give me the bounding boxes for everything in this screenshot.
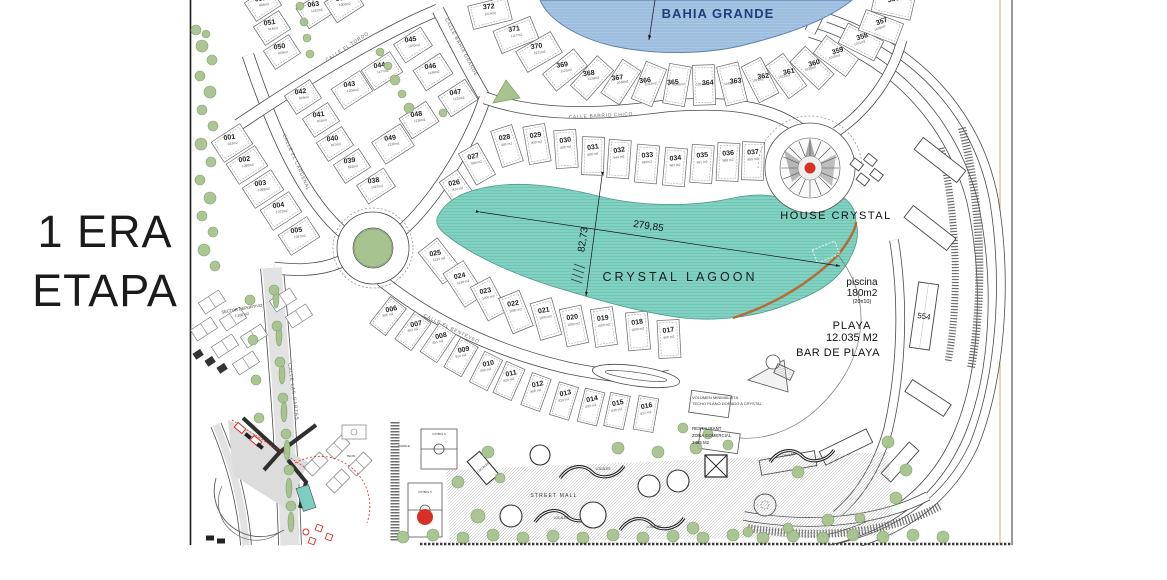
street-mall-label: STREET MALL xyxy=(530,493,577,499)
lot-015: 015830 m2 xyxy=(604,392,631,429)
lot-062: 0621000m2 xyxy=(324,0,364,23)
house-crystal-center xyxy=(805,163,816,174)
locales-label-3: LOCALES xyxy=(647,525,662,529)
roundabout xyxy=(333,208,413,288)
restaurant-label-1: RESTAURANT xyxy=(692,426,722,431)
futbol-label-1: FUTBOL 5 xyxy=(432,432,446,436)
restaurant-label-3: 1485 M2 xyxy=(692,440,710,445)
lot-364: 3641021m2 xyxy=(692,65,715,106)
svg-text:034: 034 xyxy=(669,155,681,163)
lot-016: 016837 m2 xyxy=(633,396,659,433)
svg-text:035: 035 xyxy=(696,152,708,160)
svg-text:033: 033 xyxy=(641,152,653,160)
lot-033: 033987m2 xyxy=(634,144,659,184)
red-marker xyxy=(417,509,433,525)
playa-label-1: PLAYA xyxy=(833,320,872,332)
stage-line1: 1 ERA xyxy=(30,202,180,261)
bahia-grande-label: BAHIA GRANDE xyxy=(662,6,775,21)
volumen-label-1: VOLUMEN MINIMALISTA xyxy=(692,395,738,400)
green-triangle xyxy=(493,80,520,103)
lot-030: 030800 m2 xyxy=(554,129,579,168)
playa-label-2: 12.035 M2 xyxy=(826,332,878,344)
paddle-label: PADDLE xyxy=(398,444,410,448)
stage-label: 1 ERA ETAPA xyxy=(30,202,180,321)
lot-031: 031800 m2 xyxy=(581,137,604,176)
lot-017: 017900 m2 xyxy=(657,319,681,358)
lot-029: 029800 m2 xyxy=(523,123,551,164)
lot-372: 3721214m2 xyxy=(468,0,513,29)
tenis-label: TENIS xyxy=(347,454,356,458)
piscina-label-3: (20x10) xyxy=(853,299,872,305)
cul-de-sac xyxy=(591,360,681,392)
lot-038: 0381027m2 xyxy=(357,168,396,204)
lot-034: 034987 m2 xyxy=(662,147,687,187)
bar-de-playa-label: BAR DE PLAYA xyxy=(796,347,880,359)
lot-032: 032944 m2 xyxy=(607,139,632,178)
crystal-lagoon-label: CRYSTAL LAGOON xyxy=(603,270,758,284)
svg-text:037: 037 xyxy=(747,149,759,157)
playground-elements xyxy=(303,524,333,545)
svg-text:1061m2: 1061m2 xyxy=(673,82,685,87)
site-plan: 001943m20021088m20031089m20041072m200510… xyxy=(188,0,1015,546)
futbol-label-2: FUTBOL 5 xyxy=(418,490,432,494)
svg-text:036: 036 xyxy=(722,150,734,158)
lot-022: 0221000 m2 xyxy=(499,290,534,333)
lot-037: 037905 m2 xyxy=(741,142,764,181)
lot-014: 014833 m2 xyxy=(577,388,605,426)
house-crystal-label: HOUSE CRYSTAL xyxy=(780,210,891,222)
lot-021: 0211000 m2 xyxy=(530,298,562,341)
gazebo xyxy=(705,455,727,477)
locales-label-2: LOCALES xyxy=(554,516,569,520)
lot-013: 013824 m2 xyxy=(549,382,578,420)
street-mall xyxy=(446,445,894,542)
lot-019: 0191000 m2 xyxy=(590,307,617,348)
svg-text:1021m2: 1021m2 xyxy=(696,82,708,87)
page: { "stage": { "line1": "1 ERA", "line2": … xyxy=(0,0,1167,580)
restaurant-label-2: ZONA COMERCIAL xyxy=(692,433,732,438)
locales-label-0: LOCALES xyxy=(596,467,611,471)
volumen-label-2: TECHO PLANO DORADO A CRYSTAL xyxy=(692,401,763,406)
site-plan-svg: 001943m20021088m20031089m20041072m200510… xyxy=(188,0,1015,546)
lot-020: 0201000 m2 xyxy=(559,305,588,347)
lot-012: 012808 m2 xyxy=(521,373,551,412)
building-554-label: 554 xyxy=(917,311,932,322)
lot-046: 0461146m2 xyxy=(413,53,453,91)
lot-028: 028900 m2 xyxy=(491,125,524,168)
piscina-label-1: piscina xyxy=(846,277,878,288)
lot-035: 035991 m2 xyxy=(690,144,715,183)
piscina-label-2: 180m2 xyxy=(847,288,878,299)
svg-text:372: 372 xyxy=(483,3,495,11)
stage-line2: ETAPA xyxy=(30,261,180,320)
lot-036: 036988 m2 xyxy=(716,142,740,181)
lot-018: 0181000 m2 xyxy=(625,311,650,351)
